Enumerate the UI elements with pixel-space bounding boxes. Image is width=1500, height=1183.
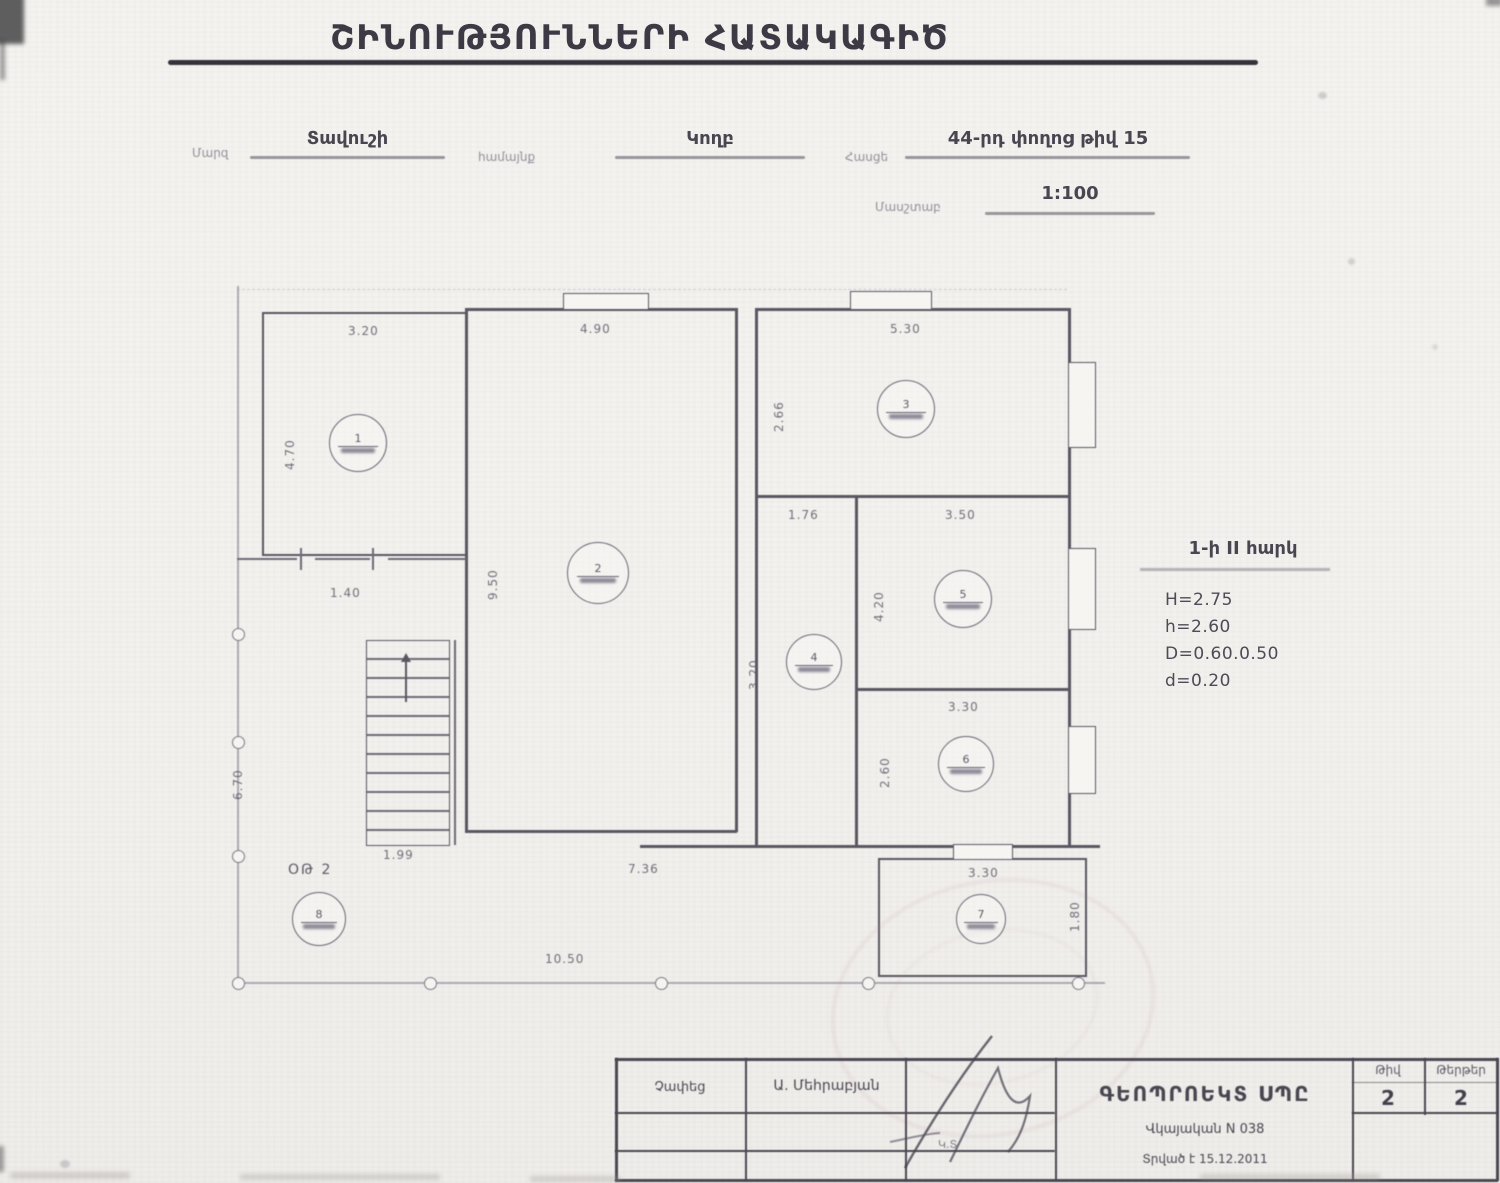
room-tag: 4 <box>786 634 842 690</box>
wall <box>755 495 1070 498</box>
scan-artifact <box>10 1172 130 1179</box>
column-node <box>232 977 245 990</box>
company-certificate: Վկայական N 038 <box>1058 1122 1352 1137</box>
wall <box>735 308 738 832</box>
sheets-value: 2 <box>1424 1086 1498 1110</box>
room-tag: 5 <box>934 570 992 628</box>
window <box>563 293 649 310</box>
titleblock-divider <box>745 1058 747 1181</box>
door-opening <box>953 844 1013 860</box>
room-tag: 8 <box>292 892 346 946</box>
column-node <box>655 977 668 990</box>
room-number: 8 <box>316 909 323 921</box>
dim-total-bottom: 10.50 <box>545 952 584 966</box>
titleblock-border <box>615 1058 618 1181</box>
wall <box>388 558 466 560</box>
dim-room5-width: 3.30 <box>948 700 979 714</box>
wall <box>300 548 302 570</box>
stairs-arrow-head <box>401 653 411 662</box>
wall <box>237 289 1067 290</box>
room-number: 3 <box>903 399 910 411</box>
floor-plan: 6.70 10.50 3.20 4.70 1 4.90 9.50 2 7.36 … <box>0 0 1500 1183</box>
wall <box>755 308 758 848</box>
scan-artifact <box>1348 258 1355 265</box>
scan-artifact <box>60 1160 70 1168</box>
window <box>1068 362 1096 448</box>
room-number: 5 <box>960 589 967 601</box>
room-tag: 2 <box>567 542 629 604</box>
signature: Կ.Տ <box>880 1030 1090 1180</box>
dim-room1-width: 3.20 <box>348 324 379 338</box>
wall <box>262 554 468 556</box>
window <box>1068 548 1096 630</box>
number-label: Թիվ <box>1352 1063 1424 1077</box>
window <box>850 291 932 310</box>
wall <box>855 497 858 845</box>
dim-room3-height: 2.66 <box>772 401 786 432</box>
scan-artifact <box>1200 1174 1380 1180</box>
room-number: 1 <box>355 433 362 445</box>
dim-hall-width: 4.90 <box>580 322 611 336</box>
room-tag: 6 <box>938 736 994 792</box>
window <box>1068 726 1096 794</box>
scan-artifact <box>0 0 24 44</box>
dim-room3-width: 5.30 <box>890 322 921 336</box>
scan-artifact <box>530 1176 620 1182</box>
dim-left-height: 6.70 <box>231 769 245 800</box>
company-issue-date: Տրված է 15.12.2011 <box>1058 1152 1352 1166</box>
dim-hall-bottom: 7.36 <box>628 862 659 876</box>
measured-label: Չափեց <box>615 1080 745 1095</box>
dim-corridor-height: 3.20 <box>747 659 761 690</box>
titleblock-row-line <box>1352 1112 1498 1114</box>
dim-stair-exit: 1.99 <box>383 848 414 862</box>
wall <box>855 688 1070 691</box>
column-node <box>232 850 245 863</box>
wall <box>315 558 370 560</box>
annex-label: ՕԹ 2 <box>288 862 332 878</box>
scan-artifact <box>0 1146 4 1172</box>
column-node <box>232 736 245 749</box>
stairs <box>366 640 450 846</box>
wall <box>454 640 456 845</box>
scan-artifact <box>1318 92 1327 99</box>
scan-artifact <box>1432 344 1438 350</box>
room-number: 2 <box>595 563 602 575</box>
wall <box>465 308 468 832</box>
room-number: 6 <box>963 754 970 766</box>
wall <box>262 312 264 556</box>
scan-artifact <box>0 40 5 80</box>
wall <box>465 830 737 833</box>
company-name: ԳԵՈՊՐՈԵԿՏ ՍՊԸ <box>1058 1082 1352 1106</box>
number-value: 2 <box>1352 1086 1424 1110</box>
room-number: 4 <box>811 652 818 664</box>
dim-room4-height: 4.20 <box>872 591 886 622</box>
svg-text:Կ.Տ: Կ.Տ <box>938 1138 957 1151</box>
column-node <box>232 628 245 641</box>
titleblock-row-line <box>1352 1082 1498 1083</box>
column-node <box>424 977 437 990</box>
dim-hall-height: 9.50 <box>486 569 500 600</box>
scan-artifact <box>240 1174 440 1180</box>
wall <box>640 845 1100 848</box>
dim-corridor-width: 1.76 <box>788 508 819 522</box>
sheets-label: Թերթեր <box>1424 1063 1498 1077</box>
wall <box>372 548 374 570</box>
stairs-direction-arrow <box>405 662 407 702</box>
wall <box>262 312 468 314</box>
room-tag: 1 <box>329 414 387 472</box>
dim-room4-width: 3.50 <box>945 508 976 522</box>
scan-artifact <box>1486 0 1500 6</box>
dim-room1-height: 4.70 <box>283 439 297 470</box>
wall <box>237 558 297 560</box>
room-tag: 3 <box>877 380 935 438</box>
dim-stair-width: 1.40 <box>330 586 361 600</box>
dim-room5-height: 2.60 <box>878 757 892 788</box>
